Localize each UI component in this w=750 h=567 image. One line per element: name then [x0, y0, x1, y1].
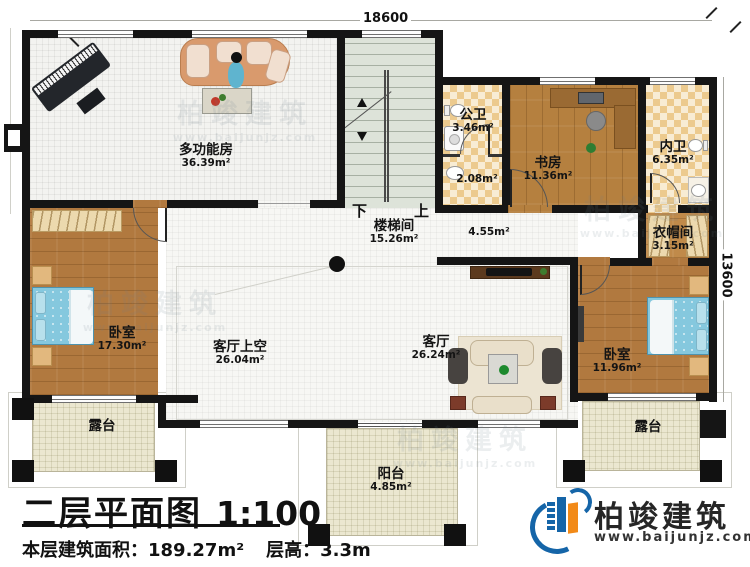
washer-door: [449, 134, 460, 145]
corner-tick: [729, 21, 741, 33]
room-area: 3.46m²: [452, 123, 493, 135]
wall-segment: [435, 30, 443, 213]
stair-railing: [384, 70, 389, 202]
room-area: 6.35m²: [652, 155, 693, 167]
stair-arrow-up: [357, 98, 367, 107]
grand-piano: [30, 46, 122, 120]
room-area: 3.15m²: [652, 241, 693, 253]
title-block: 二层平面图1:100: [22, 486, 321, 535]
wall-segment: [158, 420, 200, 428]
watermark-text: 柏竣建筑: [83, 282, 227, 321]
room-label-living-room: 客厅 26.24m²: [412, 335, 461, 362]
room-area: 4.85m²: [370, 482, 411, 494]
dimension-top: 18600: [360, 11, 411, 27]
stair-arrow-down: [357, 132, 367, 141]
pillow: [696, 329, 707, 351]
room-name: 多功能房: [179, 143, 233, 158]
doorway-patch: [133, 200, 167, 208]
room-area: 15.26m²: [370, 234, 419, 246]
floor-area-label: 本层建筑面积：189.27m²: [22, 540, 244, 561]
floor-terrace-left: [32, 400, 155, 472]
partition-wall: [443, 154, 460, 157]
wall-corner-block: [700, 410, 726, 438]
pillar: [12, 460, 34, 482]
tv: [486, 268, 532, 276]
dimension-right: 13600: [718, 249, 734, 300]
wall-segment: [307, 30, 362, 38]
room-label-cloakroom: 衣帽间 3.15m²: [652, 226, 693, 253]
plan-subtitle: 本层建筑面积：189.27m²层高：3.3m: [22, 536, 393, 562]
room-label-multi-function: 多功能房 36.39m²: [179, 143, 233, 170]
room-label-balcony: 阳台 4.85m²: [370, 467, 411, 494]
exterior-line: [10, 28, 11, 214]
wall-segment: [502, 85, 510, 205]
room-label-bedroom-left: 卧室 17.30m²: [98, 326, 147, 353]
armchair: [542, 348, 562, 384]
wall-segment: [688, 258, 717, 266]
wall-segment: [570, 393, 608, 401]
pillow: [35, 319, 46, 341]
pillar: [155, 460, 177, 482]
room-label-washroom: 2.08m²: [456, 174, 497, 186]
window: [362, 30, 421, 38]
plant: [499, 365, 509, 375]
brand-website: www.baijunjz.com: [594, 530, 750, 545]
room-name: 露台: [635, 420, 662, 435]
logo-building-bar: [557, 497, 566, 532]
pillow: [696, 302, 707, 324]
plan-scale: 1:100: [216, 494, 321, 533]
wardrobe: [32, 210, 122, 232]
nightstand: [32, 266, 52, 285]
window: [540, 77, 595, 85]
room-name: 客厅: [412, 335, 461, 350]
piano-keys: [34, 44, 98, 95]
blanket: [650, 300, 674, 354]
room-label-bedroom-right: 卧室 11.96m²: [593, 348, 642, 375]
wall-segment: [167, 200, 258, 208]
pillow: [35, 292, 46, 314]
window: [58, 30, 133, 38]
title-underline: [22, 524, 280, 527]
watermark-text: 柏竣建筑: [393, 418, 537, 457]
desk: [614, 105, 636, 149]
wall-segment: [435, 77, 540, 85]
floor-height-label: 层高：3.3m: [266, 540, 371, 561]
opening-line: [258, 203, 310, 204]
room-label-living-void: 客厅上空 26.04m²: [213, 340, 267, 367]
watermark-url: www.baijunjz.com: [393, 457, 537, 470]
toilet-tank: [703, 140, 708, 151]
room-name: 楼梯间: [370, 219, 419, 234]
room-area: 4.55m²: [468, 227, 509, 239]
wall-segment: [22, 30, 30, 402]
person-head: [231, 52, 242, 63]
wall-segment: [136, 395, 198, 403]
nightstand: [689, 276, 709, 295]
partition-wall: [488, 154, 502, 157]
piano-bench: [76, 88, 105, 115]
pillar: [12, 398, 34, 420]
window: [608, 393, 696, 401]
room-label-public-bath: 公卫 3.46m²: [452, 108, 493, 135]
watermark: 柏竣建筑 www.baijunjz.com: [393, 418, 537, 470]
floor-stairwell: [345, 38, 435, 208]
wall-segment: [570, 265, 578, 402]
doorway-patch: [258, 200, 310, 208]
room-name: 公卫: [452, 108, 493, 123]
sofa-front: [472, 396, 532, 414]
plan-title: 二层平面图: [22, 494, 202, 534]
plant: [586, 143, 596, 153]
wall-segment: [133, 30, 192, 38]
watermark-text: 柏竣建筑: [580, 188, 724, 227]
bed-right: [640, 276, 709, 376]
brand-block: 柏竣建筑 www.baijunjz.com: [528, 484, 746, 560]
room-label-study: 书房 11.36m²: [524, 156, 573, 183]
room-area: 26.24m²: [412, 350, 461, 362]
wall-segment: [437, 257, 578, 265]
room-label-hallway: 4.55m²: [468, 227, 509, 239]
wall-segment: [638, 85, 646, 205]
window: [200, 420, 288, 428]
pillar: [563, 460, 585, 482]
pillar: [700, 460, 722, 482]
person-figure: [228, 62, 244, 88]
room-label-terrace-right: 露台: [635, 420, 662, 435]
corner-tick: [705, 7, 717, 19]
room-area: 11.96m²: [593, 363, 642, 375]
tv-niche: [578, 306, 584, 342]
column: [329, 256, 345, 272]
room-area: 11.36m²: [524, 171, 573, 183]
nightstand: [32, 347, 52, 366]
room-name: 露台: [89, 419, 116, 434]
sofa-cushion: [186, 44, 210, 78]
wall-segment: [337, 30, 345, 208]
wall-segment: [610, 258, 652, 266]
window: [52, 395, 136, 403]
desk-chair: [586, 111, 606, 131]
wall-segment: [696, 393, 717, 401]
room-area: 26.04m²: [213, 355, 267, 367]
floor-plan-canvas: 18600 13600: [0, 0, 750, 567]
coffee-table: [488, 354, 518, 384]
bed: [647, 297, 709, 355]
logo-building-bar: [547, 502, 555, 532]
stair-down-label: 下: [352, 200, 367, 221]
window: [192, 30, 307, 38]
watermark-text: 柏竣建筑: [173, 92, 317, 131]
window: [650, 77, 695, 85]
room-name: 内卫: [652, 140, 693, 155]
floor-terrace-right: [582, 401, 700, 471]
side-table: [450, 396, 466, 410]
watermark: 柏竣建筑 www.baijunjz.com: [173, 92, 317, 144]
room-name: 客厅上空: [213, 340, 267, 355]
room-name: 卧室: [593, 348, 642, 363]
room-label-stairwell: 楼梯间 15.26m²: [370, 219, 419, 246]
room-label-terrace-left: 露台: [89, 419, 116, 434]
room-name: 书房: [524, 156, 573, 171]
side-table: [540, 396, 556, 410]
wall-segment: [288, 420, 358, 428]
wall-segment: [435, 205, 508, 213]
monitor: [578, 92, 604, 104]
wall-segment: [22, 200, 133, 208]
room-name: 卧室: [98, 326, 147, 341]
room-name: 衣帽间: [652, 226, 693, 241]
wall-segment: [540, 420, 578, 428]
room-area: 2.08m²: [456, 174, 497, 186]
bay-window: [8, 130, 20, 146]
room-label-ensuite-bath: 内卫 6.35m²: [652, 140, 693, 167]
room-area: 36.39m²: [179, 158, 233, 170]
stair-up-label: 上: [414, 200, 429, 221]
doorway-patch: [652, 258, 688, 266]
plant: [540, 268, 547, 275]
room-name: 阳台: [370, 467, 411, 482]
brand-logo-icon: [530, 488, 588, 546]
logo-building-bar: [568, 502, 578, 533]
room-area: 17.30m²: [98, 341, 147, 353]
nightstand: [689, 357, 709, 376]
pillar: [444, 524, 466, 546]
wall-segment: [595, 77, 650, 85]
